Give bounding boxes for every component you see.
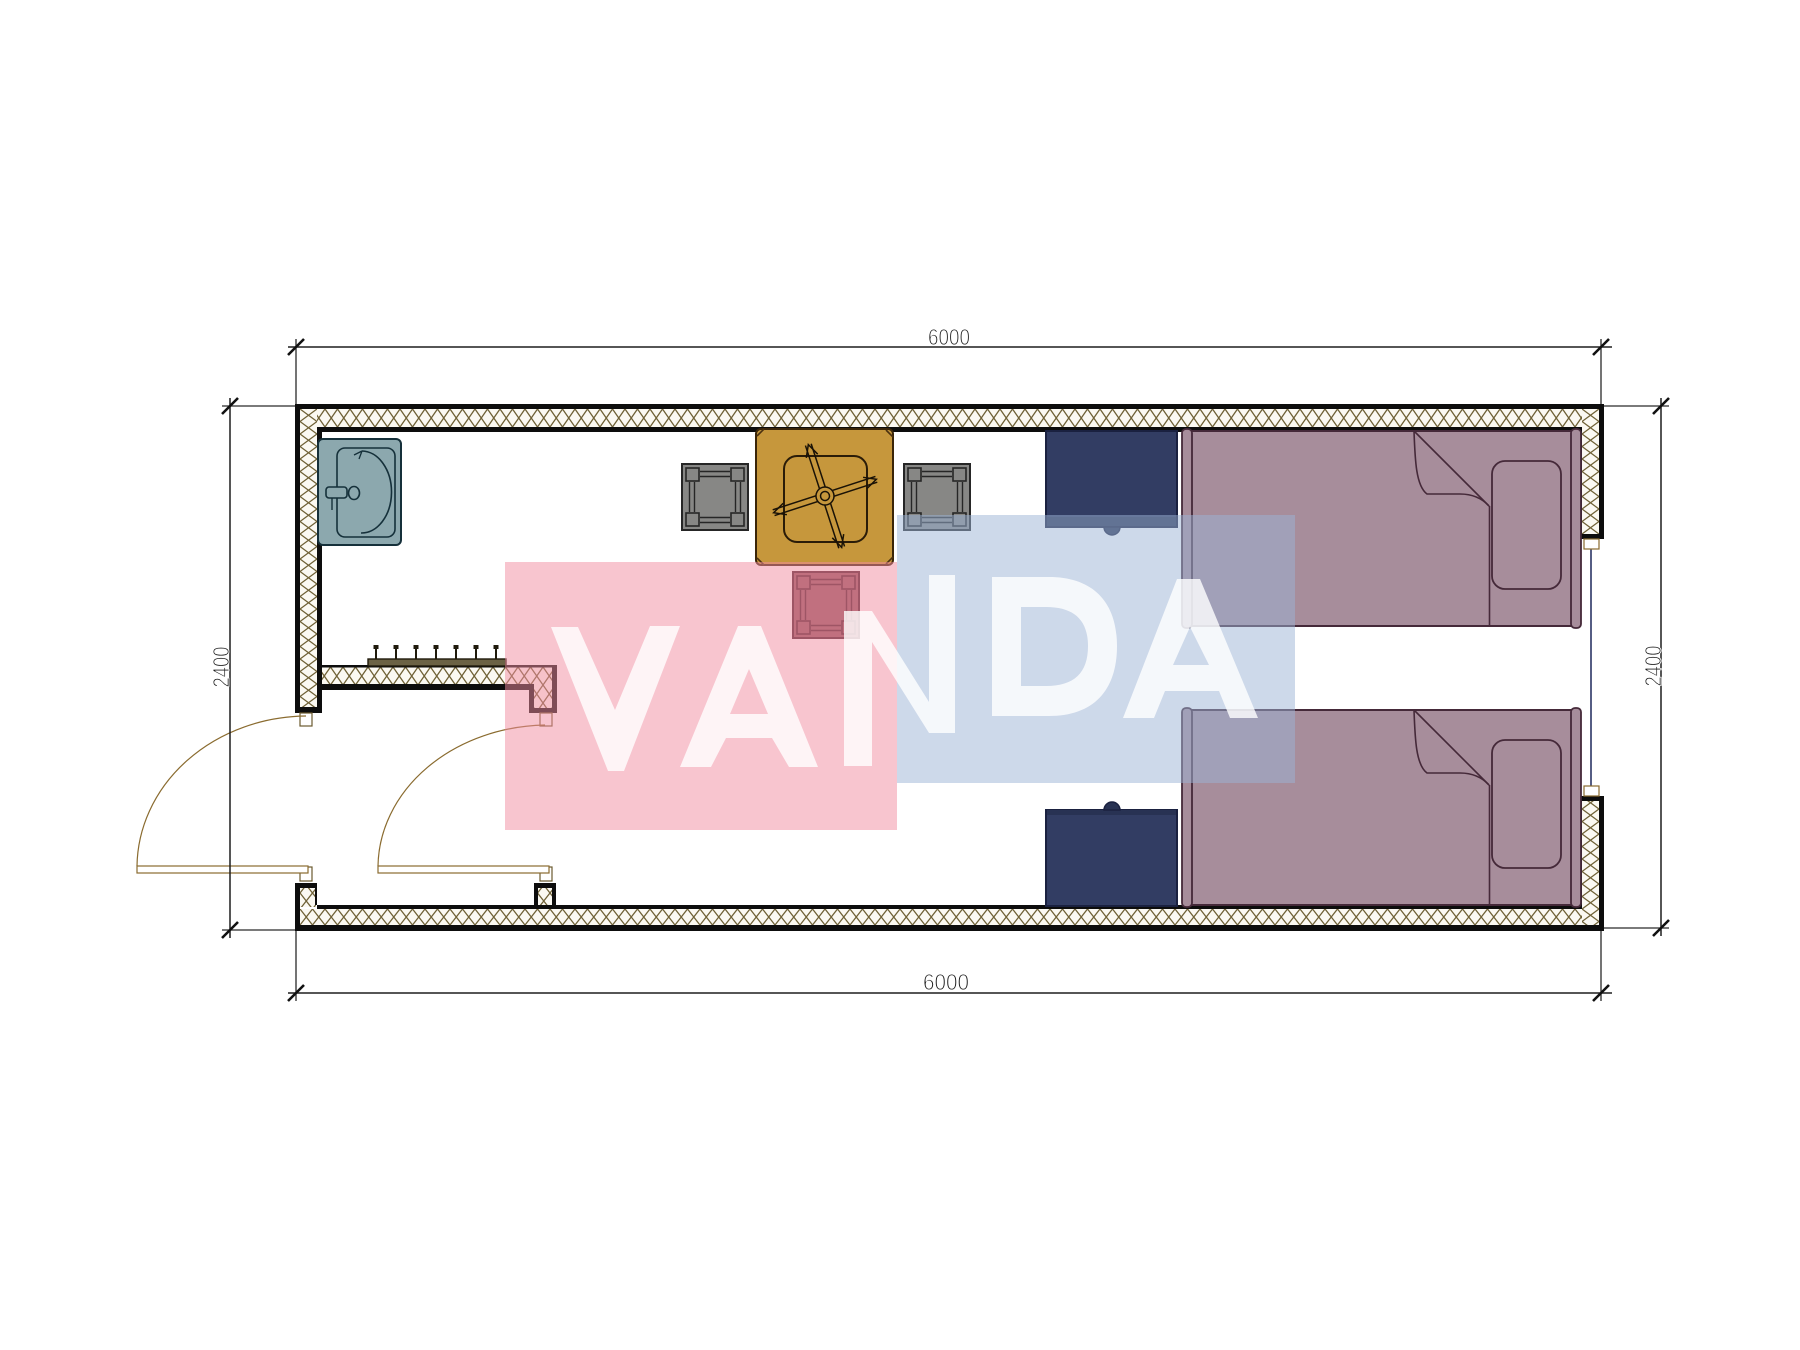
svg-text:2400: 2400 [1640,646,1666,687]
svg-text:2400: 2400 [208,647,234,688]
svg-text:6000: 6000 [923,969,969,995]
svg-text:6000: 6000 [928,324,970,350]
